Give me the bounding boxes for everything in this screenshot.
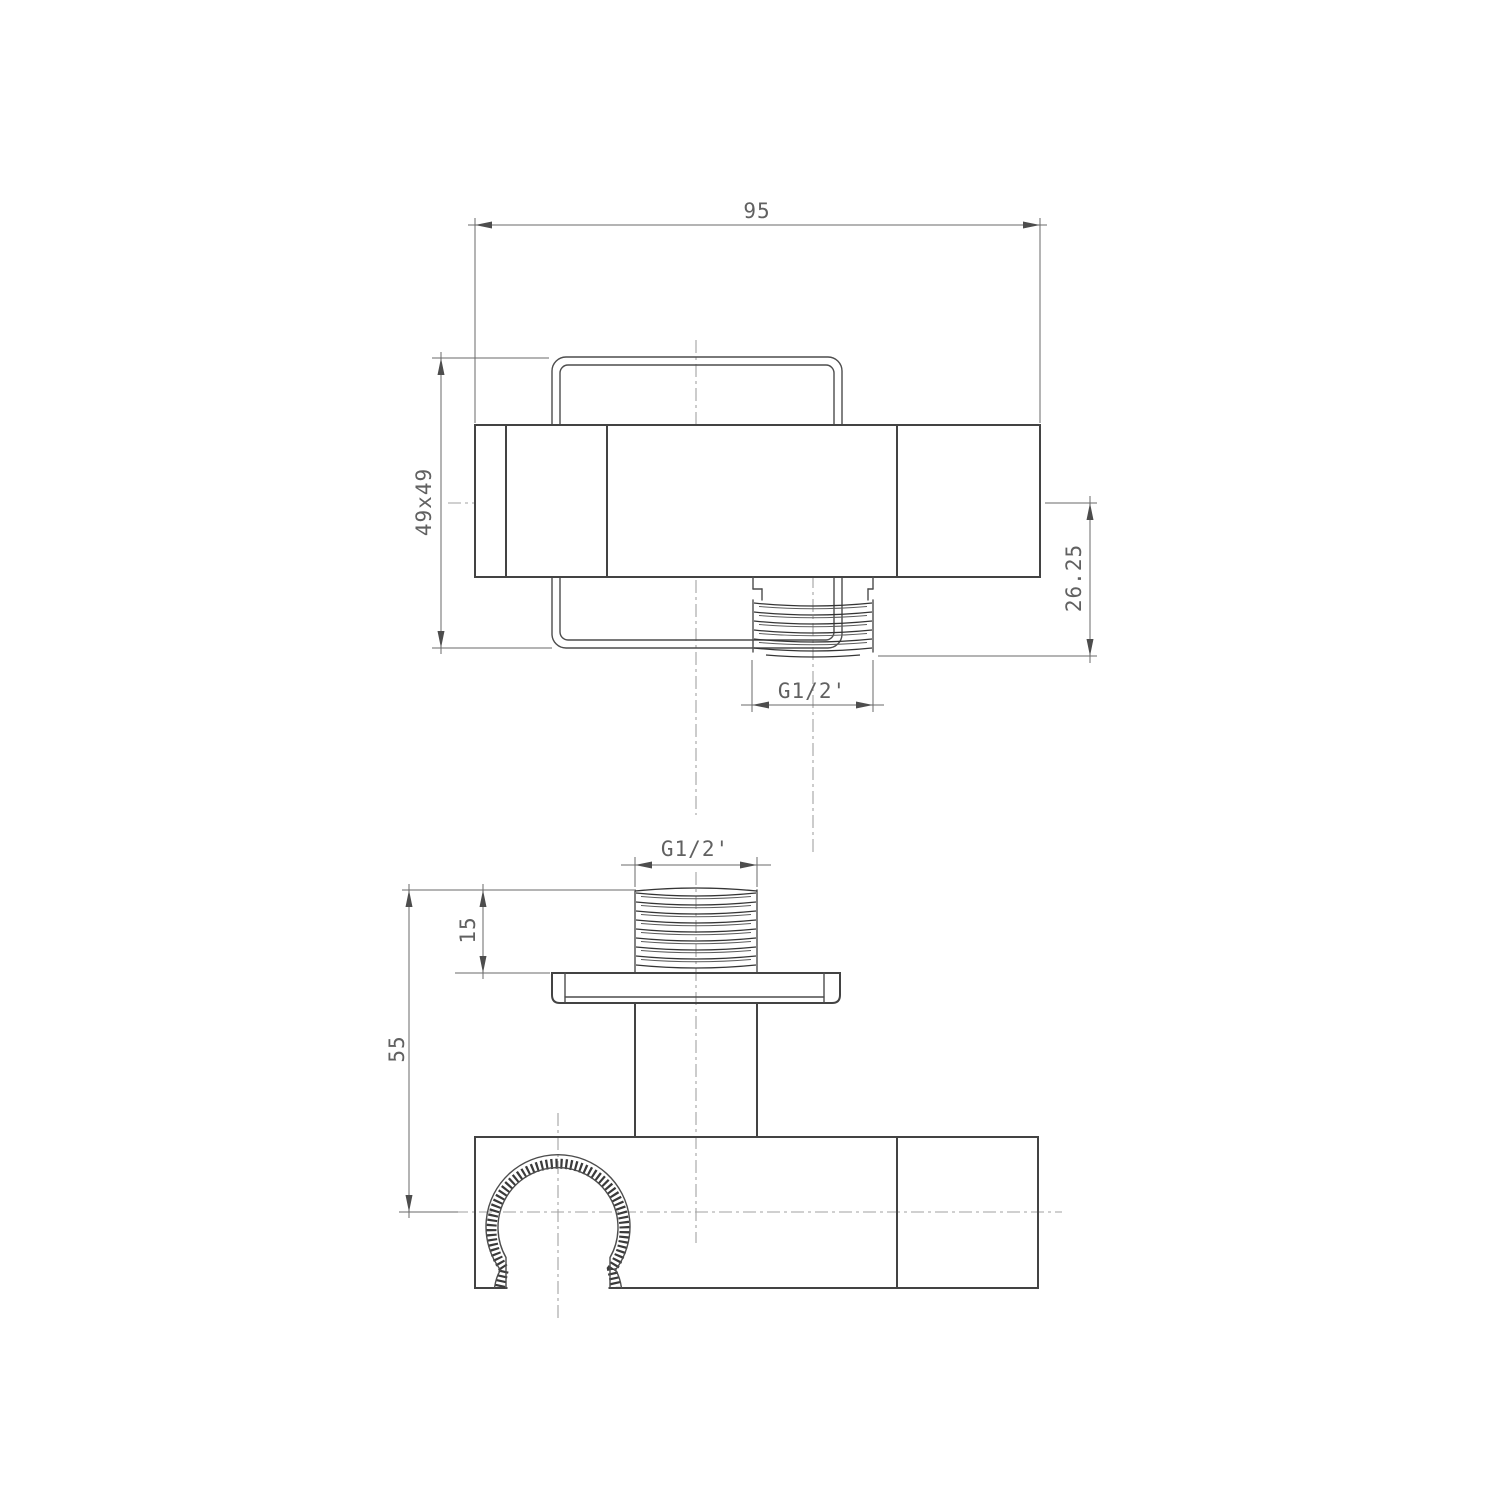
dimension-thread-length: 15 <box>455 884 550 979</box>
dimension-overall-width: 95 <box>468 199 1047 423</box>
dim-label-section-square: 49x49 <box>412 468 436 536</box>
dim-label-overall-height: 55 <box>385 1035 409 1062</box>
dimension-overall-height: 55 <box>385 884 458 1218</box>
front-view-centerlines <box>455 872 1062 1318</box>
drawing-page: 95 49x49 26.25 G1/2' <box>0 0 1500 1500</box>
front-view: G1/2' 15 55 <box>385 837 1062 1318</box>
technical-drawing-canvas: 95 49x49 26.25 G1/2' <box>0 0 1500 1500</box>
dim-label-inlet-thread: G1/2' <box>661 837 729 861</box>
top-view-centerlines <box>448 340 1040 855</box>
dim-label-overall-width: 95 <box>743 199 770 223</box>
dim-label-thread-length: 15 <box>456 916 480 943</box>
dim-label-outlet-thread: G1/2' <box>778 679 846 703</box>
top-view: 95 49x49 26.25 G1/2' <box>412 199 1097 855</box>
body-top-view <box>475 425 1040 577</box>
dim-label-outlet-offset: 26.25 <box>1062 544 1086 612</box>
